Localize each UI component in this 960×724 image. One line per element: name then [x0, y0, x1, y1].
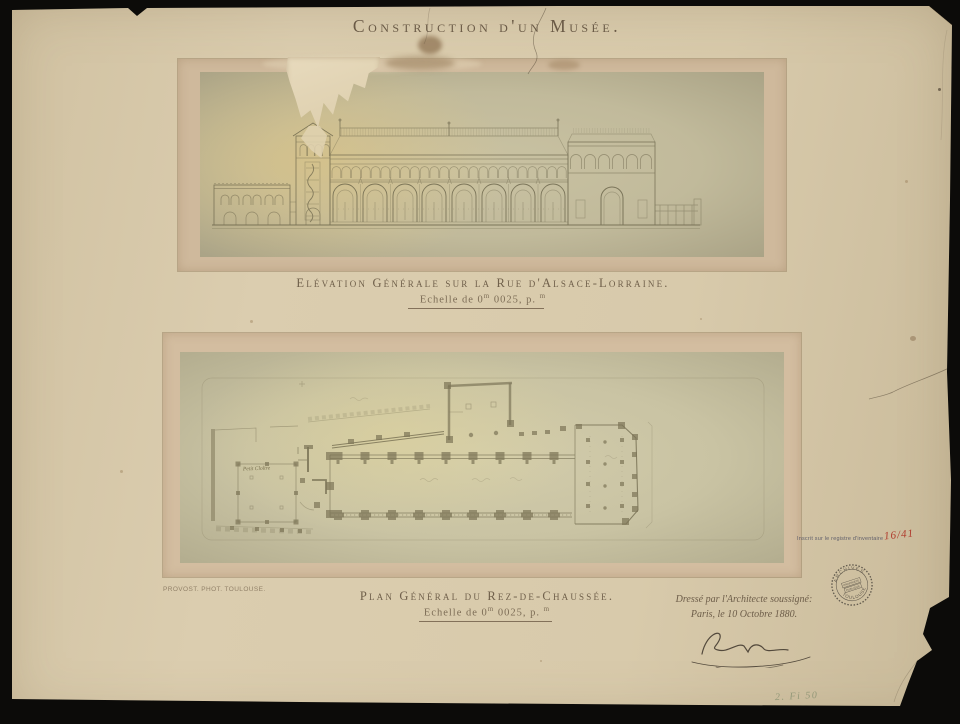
elevation-drawing: [200, 72, 764, 257]
elevation-photograph: [200, 72, 764, 257]
shelfmark-pencil: 2. Fi 50: [775, 690, 819, 703]
facade-drawing-strokes: [212, 119, 701, 229]
scale-sup: m: [540, 292, 546, 300]
plan-drawing: [180, 352, 784, 563]
inventory-number-handwritten: 16/41: [883, 527, 914, 542]
plan-piers: [211, 382, 638, 533]
left-wing: [214, 184, 296, 226]
document-title: Construction d'un Musée.: [287, 16, 687, 37]
signature-strokes: [688, 622, 814, 668]
plan-room-label: Petit Cloître: [243, 466, 270, 473]
plan-photo-mount: [163, 333, 801, 577]
paper-sheet: Construction d'un Musée.: [0, 0, 960, 724]
foxing-fleck: [120, 470, 123, 473]
elevation-photo-mount: [178, 59, 786, 271]
fence: [655, 199, 701, 225]
caption-rule: [408, 308, 544, 309]
foxing-fleck: [250, 320, 253, 323]
stain-spot: [910, 336, 916, 341]
right-pavilion: [568, 131, 655, 226]
corner-stain: [926, 6, 952, 28]
scale-sup: m: [544, 605, 550, 613]
architect-note-line2: Paris, le 10 Octobre 1880.: [668, 607, 820, 622]
architect-note: Dressé par l'Architecte soussigné: Paris…: [668, 592, 820, 622]
scale-text: Echelle de 0: [424, 608, 488, 619]
scale-text: Echelle de 0: [420, 295, 484, 306]
scale-text: 0025, p.: [490, 295, 539, 306]
plan-photograph: [180, 352, 784, 563]
main-block: [330, 119, 568, 225]
foxing-fleck: [540, 660, 542, 662]
foxing-fleck: [700, 318, 702, 320]
architect-note-line1: Dressé par l'Architecte soussigné:: [668, 592, 820, 607]
elevation-caption: Elévation Générale sur la Rue d'Alsace-L…: [233, 276, 733, 291]
architect-signature: [688, 622, 814, 668]
plan-caption: Plan Général du Rez-de-Chaussée.: [237, 589, 737, 604]
elevation-scale: Echelle de 0m 0025, p. m: [233, 292, 733, 306]
scale-text: 0025, p.: [494, 608, 543, 619]
archive-stamp: ARCHIVES TOULOUSE PROPRIÉTÉ PUBLIQUE: [824, 557, 879, 612]
plan-scale: Echelle de 0m 0025, p. m: [237, 605, 737, 619]
foxing-fleck: [905, 180, 908, 183]
plan-strokes: [202, 378, 764, 540]
caption-rule: [419, 621, 552, 622]
stain-blotch: [418, 36, 442, 54]
ink-speck: [938, 88, 941, 91]
photographer-credit: PROVOST. PHOT. TOULOUSE.: [163, 586, 266, 593]
archive-stamp-graphic: ARCHIVES TOULOUSE PROPRIÉTÉ PUBLIQUE: [824, 557, 879, 612]
inventory-stamp-text: Inscrit sur le registre d'inventaire: [797, 536, 883, 542]
